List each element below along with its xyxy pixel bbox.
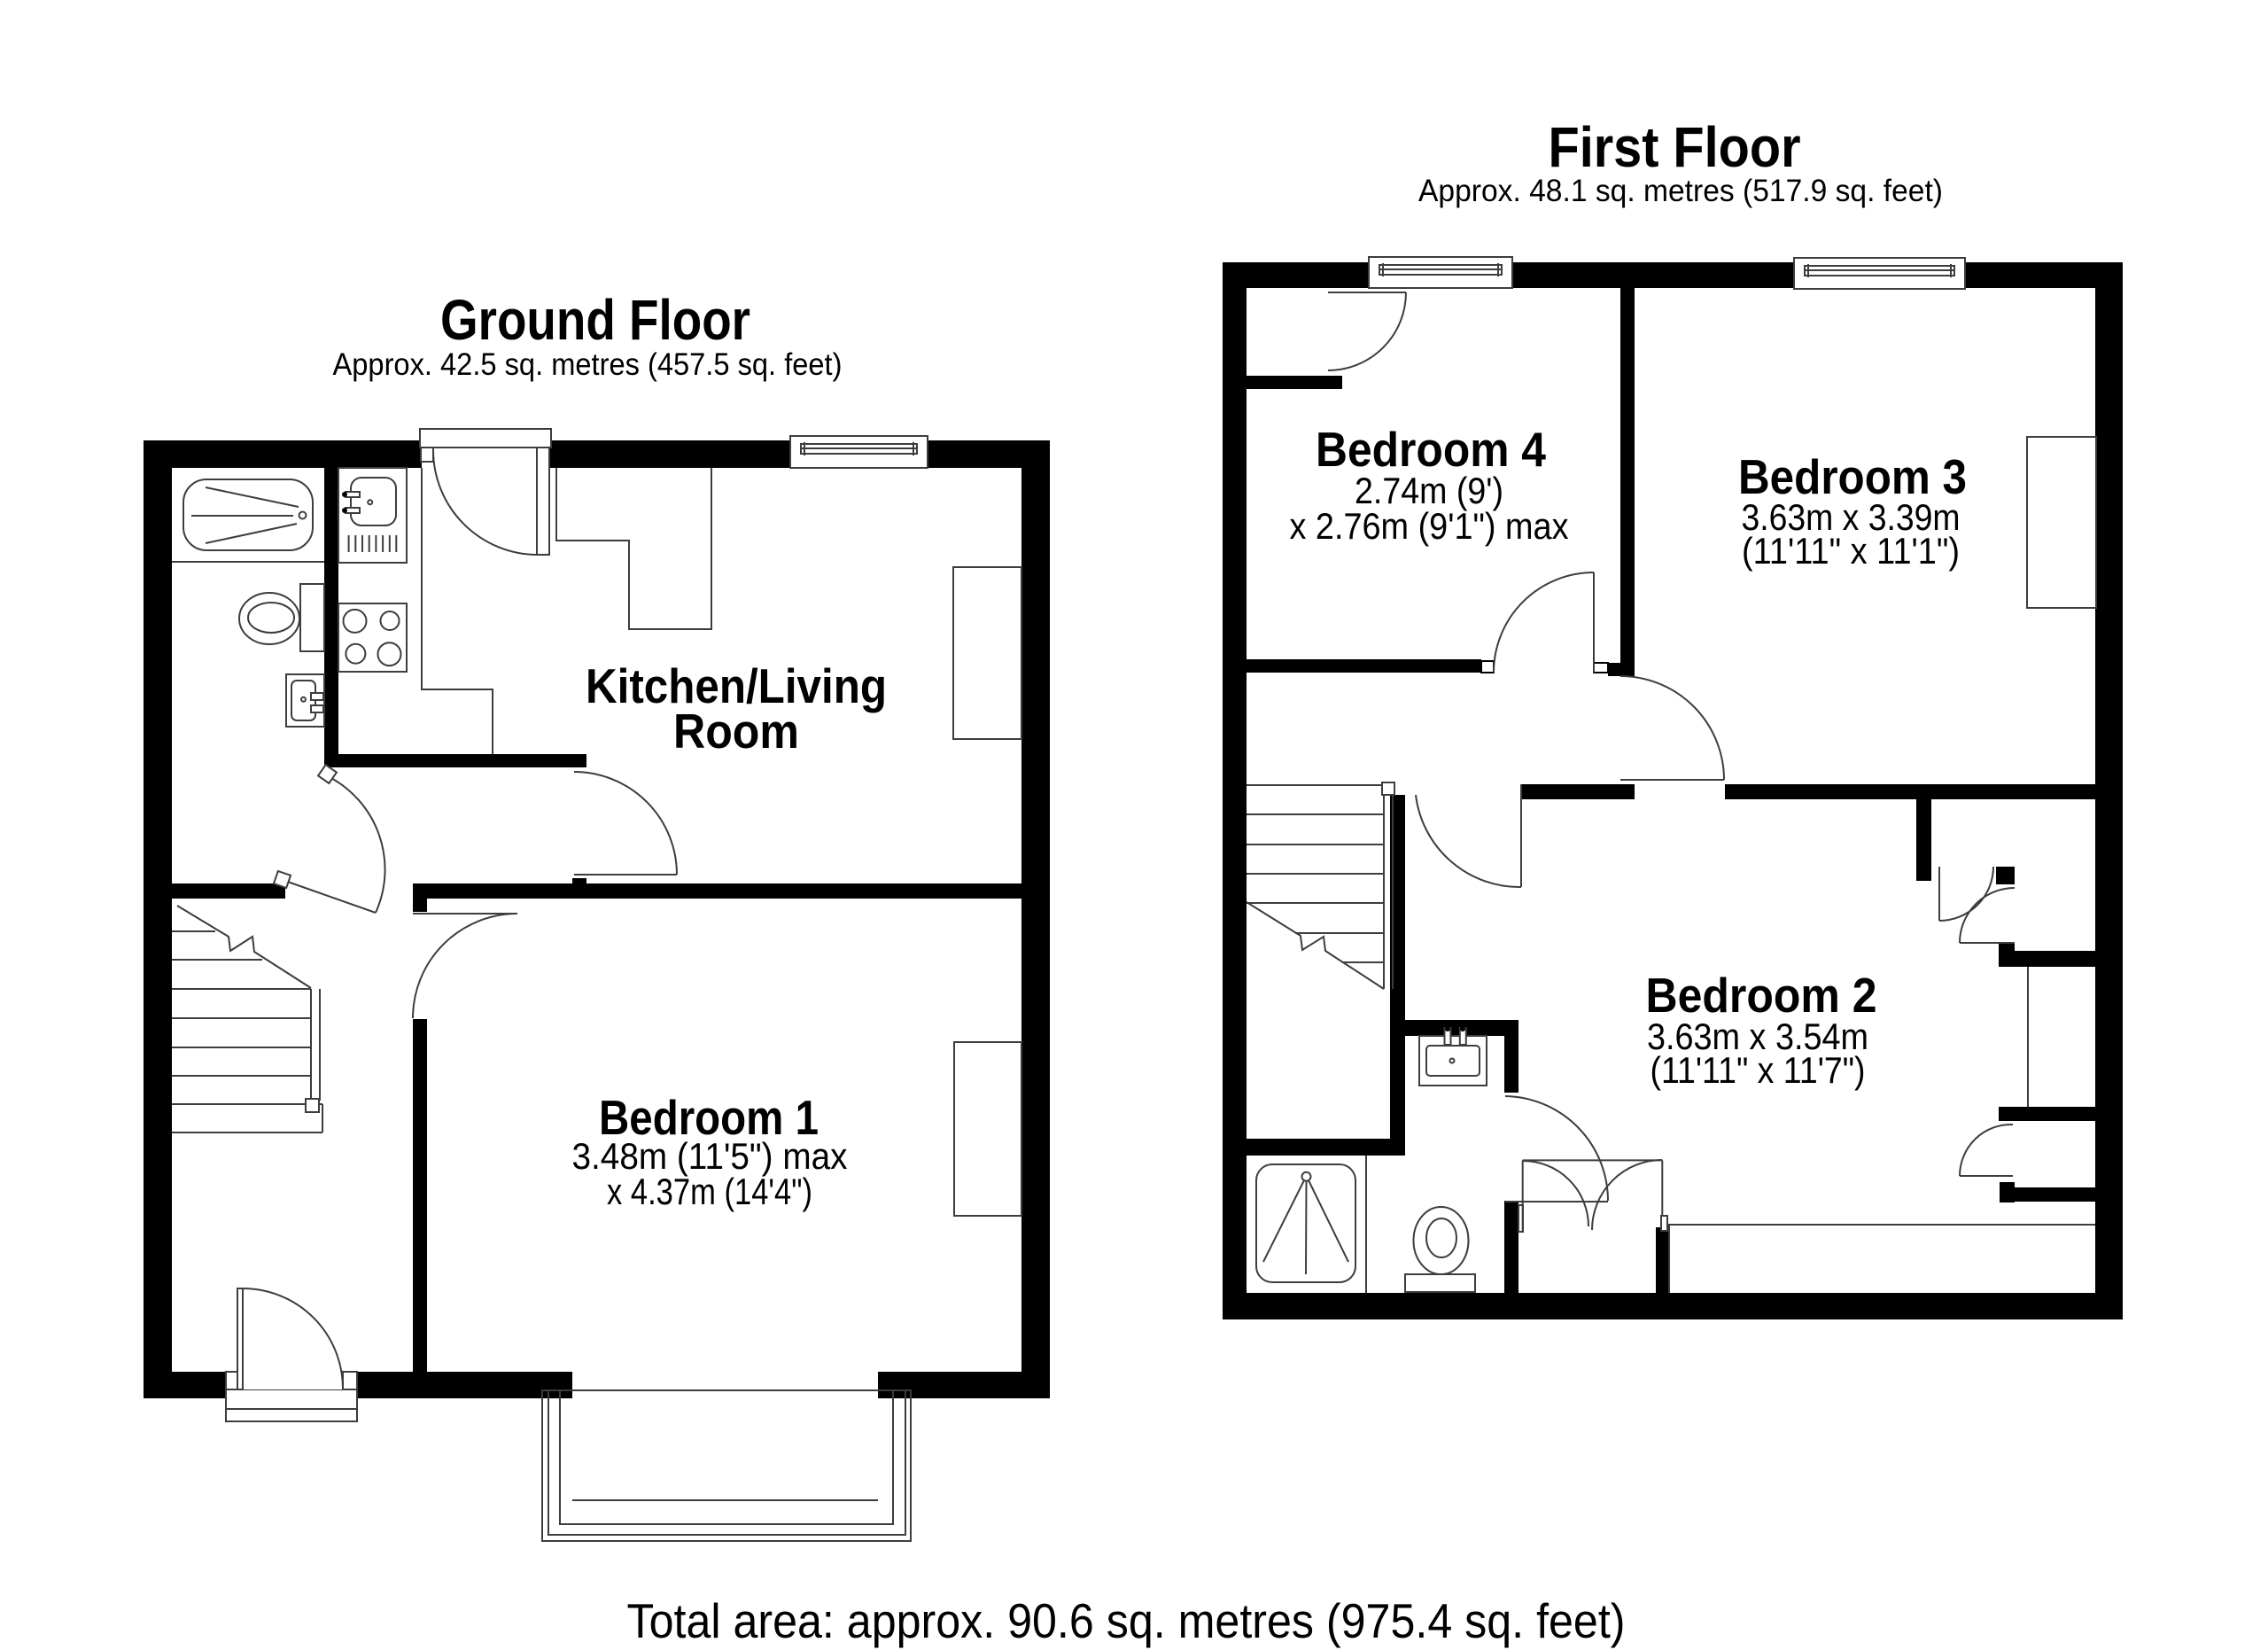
svg-text:x 2.76m (9'1") max: x 2.76m (9'1") max (1290, 505, 1569, 547)
svg-text:x 4.37m (14'4"): x 4.37m (14'4") (607, 1171, 812, 1212)
svg-text:Approx. 42.5 sq. metres (457.5: Approx. 42.5 sq. metres (457.5 sq. feet) (333, 347, 843, 382)
svg-text:Bedroom 4: Bedroom 4 (1316, 422, 1546, 477)
svg-text:Bedroom 2: Bedroom 2 (1646, 968, 1877, 1023)
svg-text:(11'11" x 11'1"): (11'11" x 11'1") (1742, 530, 1960, 572)
svg-text:Approx. 48.1 sq. metres (517.9: Approx. 48.1 sq. metres (517.9 sq. feet) (1418, 174, 1943, 208)
svg-text:Ground Floor: Ground Floor (440, 288, 750, 352)
svg-text:First Floor: First Floor (1549, 115, 1801, 179)
svg-text:(11'11" x 11'7"): (11'11" x 11'7") (1651, 1049, 1866, 1091)
svg-text:Room: Room (673, 704, 799, 759)
svg-text:Total area: approx. 90.6 sq. m: Total area: approx. 90.6 sq. metres (975… (627, 1593, 1626, 1648)
